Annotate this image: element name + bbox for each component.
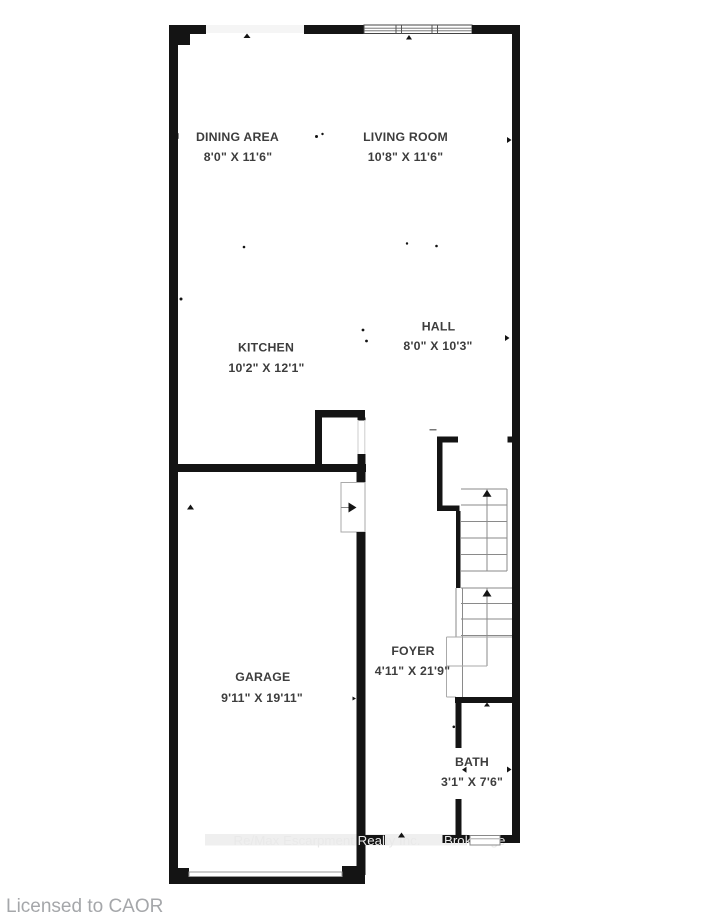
svg-text:KITCHEN: KITCHEN	[238, 341, 294, 355]
svg-text:Re/Max Escarpment Realty Inc.: Re/Max Escarpment Realty Inc.	[234, 833, 421, 848]
svg-text:10'2" X 12'1": 10'2" X 12'1"	[228, 361, 304, 375]
svg-text:HALL: HALL	[422, 320, 456, 334]
svg-text:3'1" X 7'6": 3'1" X 7'6"	[441, 775, 503, 789]
svg-text:8'0" X 10'3": 8'0" X 10'3"	[403, 339, 472, 353]
svg-text:4'11" X 21'9": 4'11" X 21'9"	[375, 664, 451, 678]
svg-text:9'11" X 19'11": 9'11" X 19'11"	[221, 691, 303, 705]
svg-text:10'8" X 11'6": 10'8" X 11'6"	[368, 150, 444, 164]
svg-text:8'0" X 11'6": 8'0" X 11'6"	[204, 150, 272, 164]
svg-text:FOYER: FOYER	[391, 644, 434, 658]
svg-text:Licensed to CAOR: Licensed to CAOR	[6, 896, 163, 917]
svg-text:LIVING ROOM: LIVING ROOM	[363, 130, 448, 144]
svg-text:GARAGE: GARAGE	[235, 670, 290, 684]
svg-text:BATH: BATH	[455, 755, 489, 769]
svg-text:DINING AREA: DINING AREA	[196, 130, 279, 144]
